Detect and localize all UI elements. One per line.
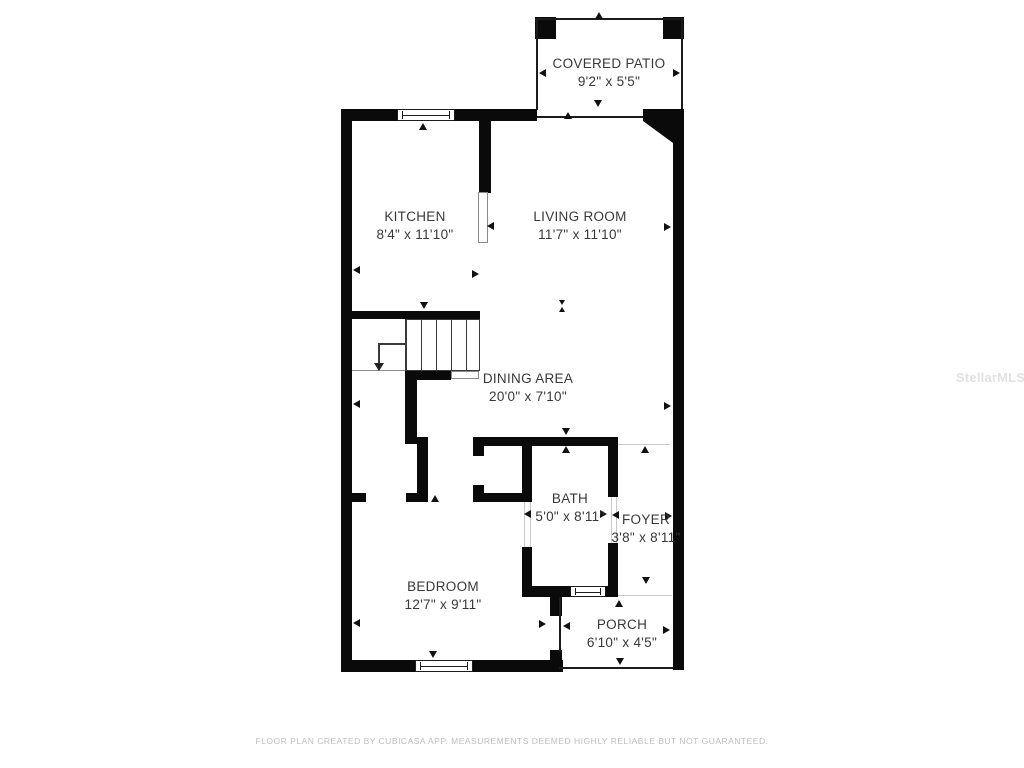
wall-top-a (341, 109, 397, 121)
door-arrow (431, 495, 439, 502)
wall-bath-right-upper (608, 446, 618, 497)
measure-arrow (539, 620, 546, 628)
wall-stairs-top (341, 311, 480, 319)
stairs-treads (405, 319, 480, 371)
room-boundary-marker (559, 307, 565, 312)
bath-left-door-jamb-b (530, 502, 531, 547)
wall-bath-left-upper (522, 444, 532, 502)
measure-arrow (353, 400, 360, 408)
room-label-kitchen: KITCHEN 8'4" x 11'10" (377, 208, 454, 244)
stairs-door-leaf (451, 371, 479, 379)
room-name: BEDROOM (405, 578, 482, 596)
room-boundary-marker (562, 428, 570, 435)
room-dims: 6'10" x 4'5" (587, 634, 657, 652)
watermark: StellarMLS (956, 370, 1024, 385)
porch-bottom-edge (559, 667, 673, 669)
room-dims: 8'4" x 11'10" (377, 226, 454, 244)
room-label-living-room: LIVING ROOM 11'7" x 11'10" (533, 208, 626, 244)
room-dims: 20'0" x 7'10" (483, 388, 573, 406)
measure-arrow (539, 69, 546, 77)
patio-left-edge (536, 19, 538, 110)
room-label-bedroom: BEDROOM 12'7" x 9'11" (405, 578, 482, 614)
wall-bedroom-top-left (350, 493, 366, 502)
wall-hall-bottom-t (406, 493, 428, 502)
room-dims: 12'7" x 9'11" (405, 596, 482, 614)
stairs-direction-line-h (378, 343, 406, 345)
wall-outer-left (341, 109, 352, 672)
wall-kitchen-divider (479, 109, 491, 193)
patio-right-edge (681, 19, 683, 110)
room-name: BATH (535, 490, 604, 508)
measure-arrow (563, 622, 570, 630)
measure-arrow (616, 658, 624, 665)
wall-under-stairs-v (405, 371, 417, 437)
wall-bath-bottom-right (606, 586, 618, 597)
wall-bath-bottom-left (522, 586, 570, 597)
room-label-foyer: FOYER 3'8" x 8'11" (611, 511, 680, 547)
wall-top-b (455, 109, 537, 121)
wall-outer-right (673, 141, 684, 670)
measure-arrow (663, 626, 670, 634)
wall-bath-top (473, 437, 618, 446)
room-dims: 9'2" x 5'5" (553, 73, 666, 91)
bath-window (570, 586, 606, 597)
measure-arrow (429, 651, 437, 658)
room-name: LIVING ROOM (533, 208, 626, 226)
measure-arrow (664, 223, 671, 231)
measure-arrow (673, 69, 680, 77)
measure-arrow (419, 123, 427, 130)
room-label-dining-area: DINING AREA 20'0" x 7'10" (483, 370, 573, 406)
room-dims: 3'8" x 8'11" (611, 529, 680, 547)
door-arrow (641, 446, 649, 453)
room-boundary-marker (562, 446, 570, 453)
measure-arrow (353, 619, 360, 627)
room-label-bath: BATH 5'0" x 8'11" (535, 490, 604, 526)
measure-arrow (353, 266, 360, 274)
room-label-porch: PORCH 6'10" x 4'5" (587, 616, 657, 652)
room-dims: 5'0" x 8'11" (535, 508, 604, 526)
measure-arrow (420, 302, 428, 309)
kitchen-door-leaf (478, 192, 488, 243)
bath-left-door-jamb-a (524, 502, 525, 547)
measure-arrow (615, 600, 623, 607)
room-boundary-marker (559, 300, 565, 305)
room-dims: 11'7" x 11'10" (533, 226, 626, 244)
room-name: COVERED PATIO (553, 55, 666, 73)
measure-arrow (472, 270, 479, 278)
measure-arrow (564, 112, 572, 119)
room-name: DINING AREA (483, 370, 573, 388)
stairs-direction-line-v (378, 343, 380, 365)
footer-disclaimer: FLOOR PLAN CREATED BY CUBICASA APP. MEAS… (0, 736, 1024, 746)
stairs-down-arrow (374, 363, 384, 371)
measure-arrow (664, 402, 671, 410)
foyer-bottom-threshold (618, 595, 672, 596)
patio-top-edge (535, 18, 684, 20)
foyer-top-threshold (618, 444, 670, 445)
porch-left-edge (559, 597, 561, 653)
door-arrow (487, 222, 494, 230)
wall-hall-center (417, 443, 428, 493)
measure-arrow (524, 510, 531, 518)
measure-arrow (595, 12, 603, 19)
wall-top-c (643, 109, 684, 121)
room-label-covered-patio: COVERED PATIO 9'2" x 5'5" (553, 55, 666, 91)
door-arrow (642, 577, 650, 584)
room-name: KITCHEN (377, 208, 454, 226)
measure-arrow (594, 100, 602, 107)
bedroom-window (415, 660, 473, 672)
room-name: PORCH (587, 616, 657, 634)
room-name: FOYER (611, 511, 680, 529)
patio-post-left (535, 17, 556, 39)
kitchen-window (397, 109, 455, 121)
wall-hall-right-lower (473, 485, 484, 502)
patio-sliding-door-opening (537, 116, 643, 118)
floor-plan: StellarMLS (0, 0, 1024, 768)
